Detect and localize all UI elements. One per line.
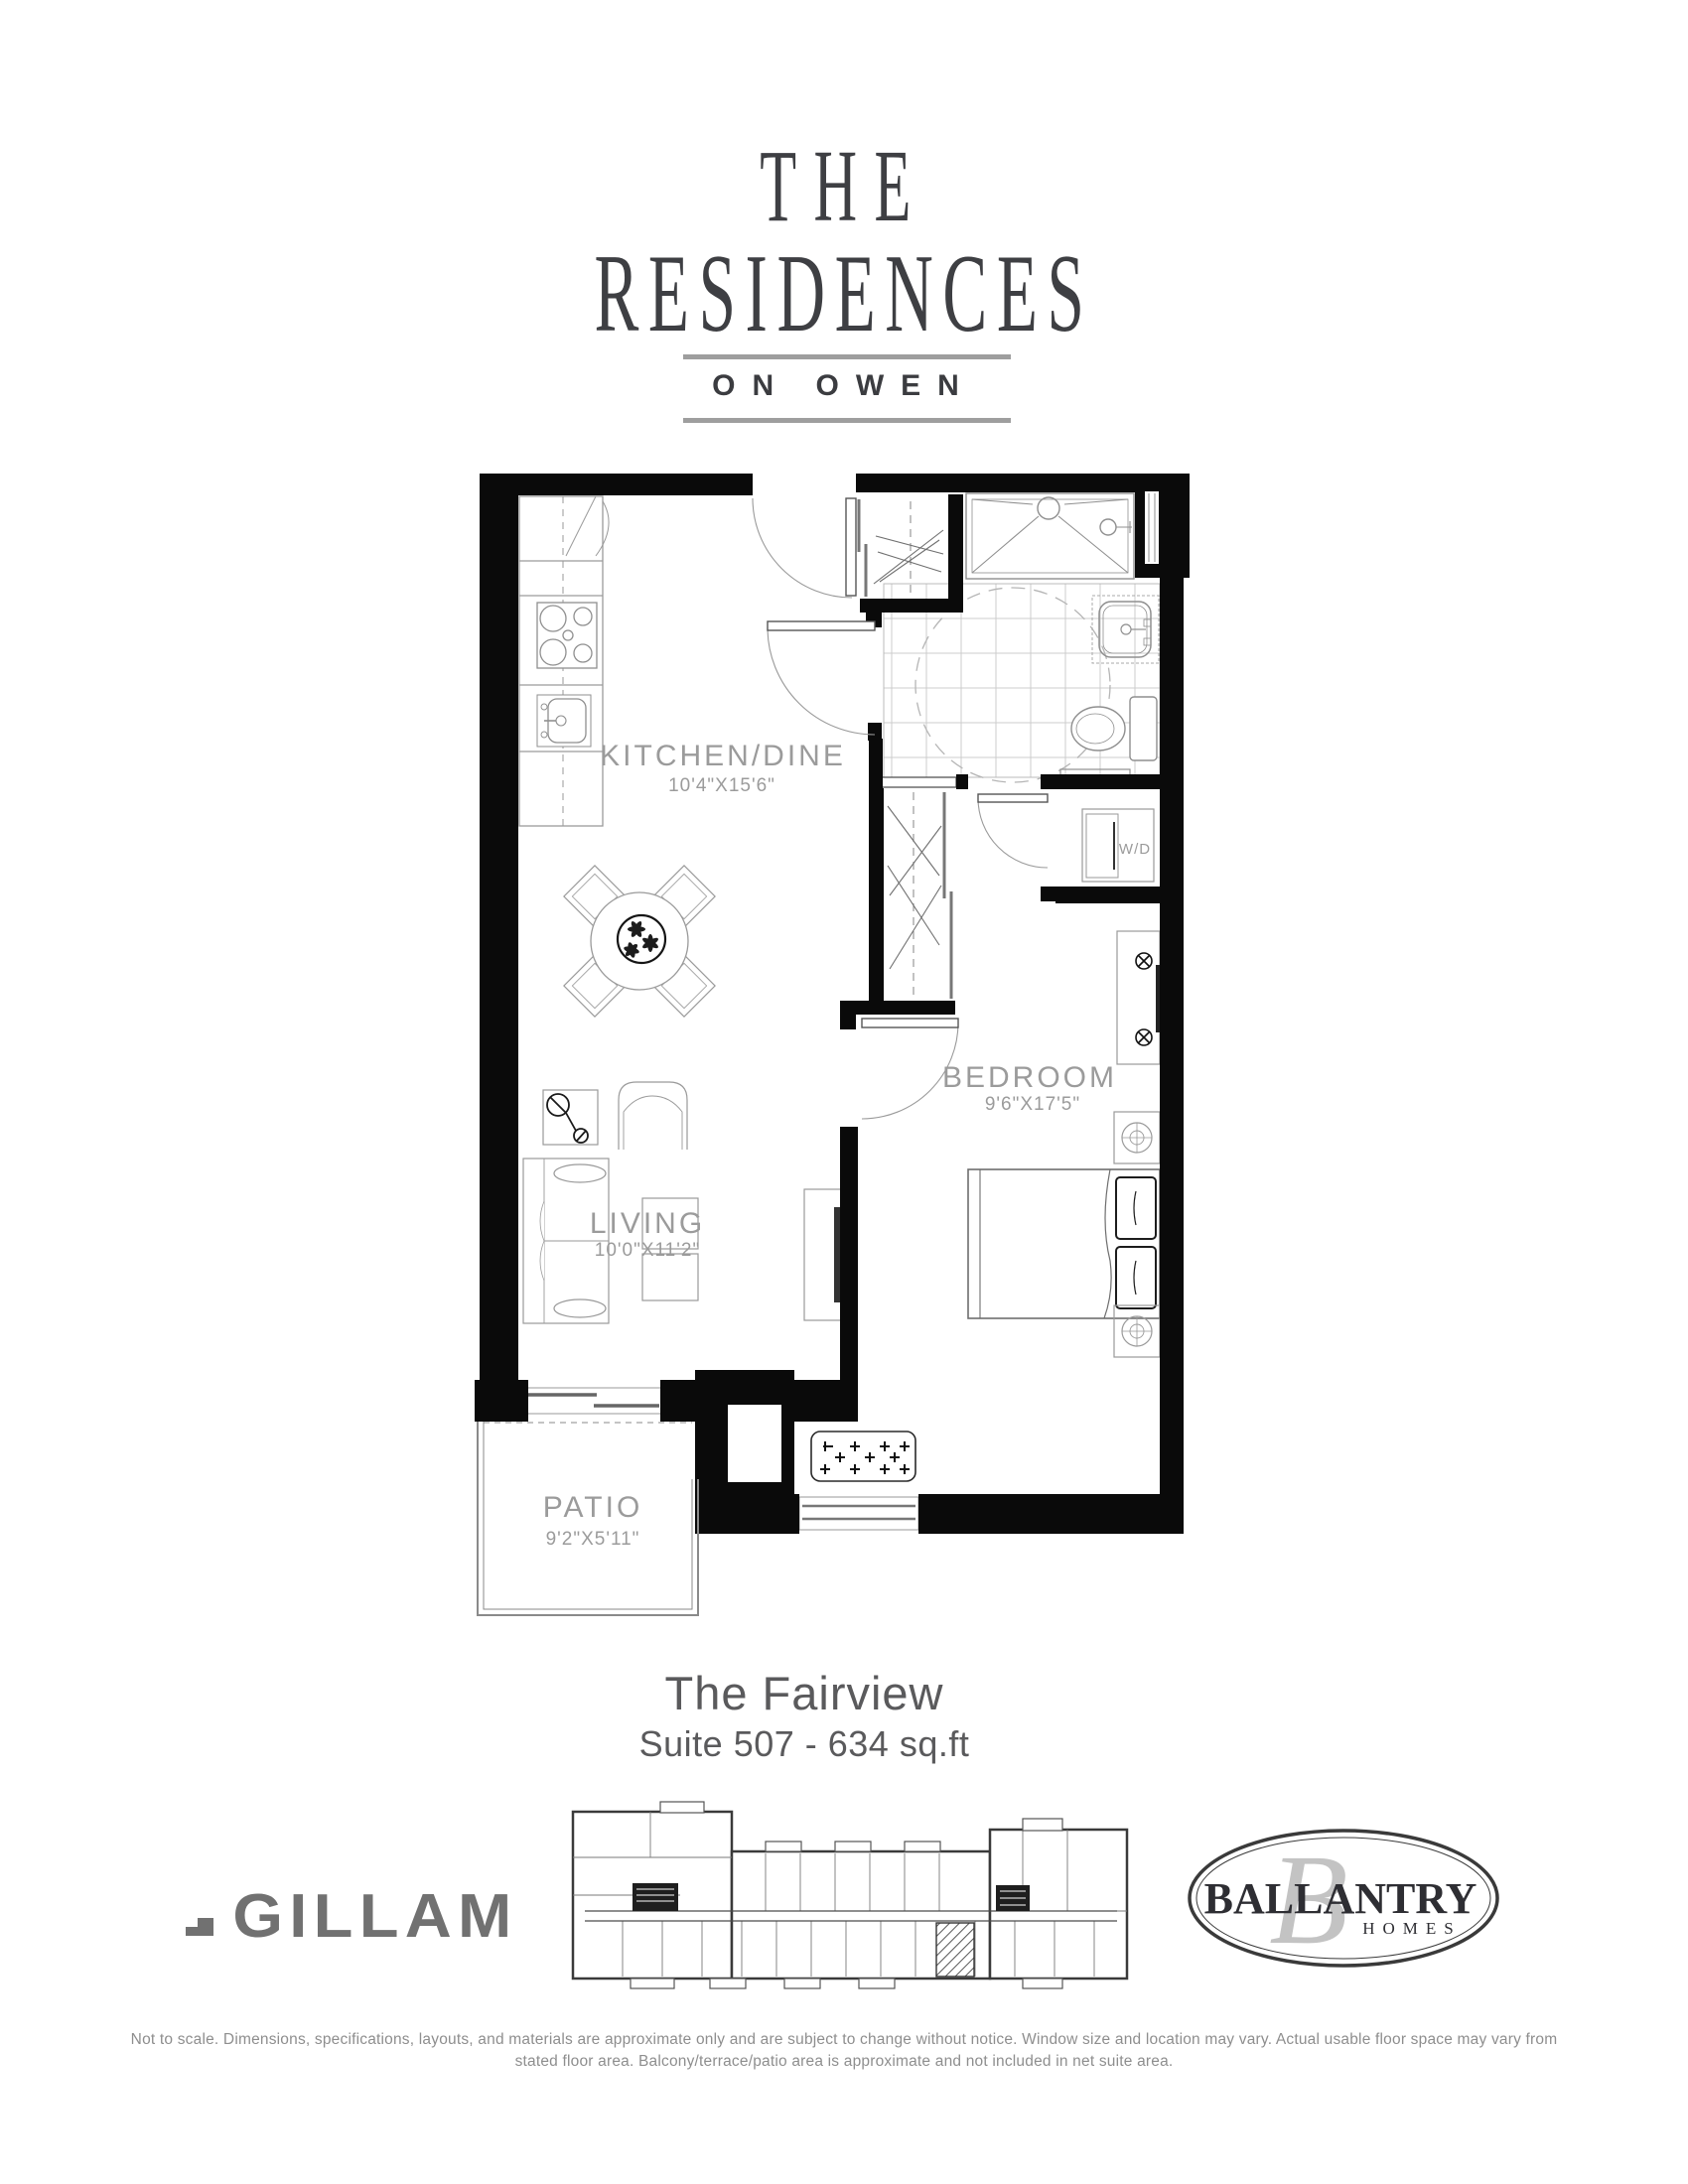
hall-closet bbox=[888, 792, 951, 999]
gillam-wordmark: GILLAM bbox=[232, 1881, 517, 1950]
dresser bbox=[1117, 931, 1160, 1064]
entry-door bbox=[753, 498, 856, 598]
ballantry-logo: B BALLANTRY HOMES bbox=[1182, 1822, 1509, 1976]
stove bbox=[537, 603, 597, 668]
wd-label: W/D bbox=[1119, 841, 1151, 858]
bathroom-tile-grid bbox=[884, 584, 1160, 777]
dining-set bbox=[564, 866, 715, 1017]
entry-closet bbox=[859, 499, 943, 597]
disclaimer-line-2: stated floor area. Balcony/terrace/patio… bbox=[0, 2053, 1688, 2071]
suite-name: The Fairview bbox=[308, 1666, 1301, 1720]
armchair bbox=[619, 1082, 687, 1150]
bathroom-turning-circle bbox=[915, 588, 1110, 782]
bedroom-window bbox=[799, 1497, 918, 1530]
gillam-mark-icon bbox=[186, 1918, 213, 1936]
brand-word-residences: RESIDENCES bbox=[338, 230, 1350, 358]
tv-console bbox=[804, 1189, 842, 1320]
bench bbox=[811, 1432, 915, 1481]
tagline-rule-top bbox=[683, 354, 1011, 359]
kitchen-dims: 10'4"X15'6" bbox=[668, 775, 775, 796]
living-label: LIVING bbox=[590, 1207, 705, 1240]
patio-label: PATIO bbox=[543, 1491, 643, 1524]
brand-word-the: THE bbox=[354, 127, 1334, 245]
gillam-logo: GILLAM bbox=[184, 1866, 561, 1956]
disclaimer-line-1: Not to scale. Dimensions, specifications… bbox=[0, 2031, 1688, 2049]
brand-tagline: ON OWEN bbox=[0, 369, 1688, 403]
living-dims: 10'0"X11'2" bbox=[595, 1240, 700, 1261]
bathroom-door bbox=[768, 621, 875, 735]
key-plan bbox=[571, 1800, 1132, 1993]
ballantry-wordmark: BALLANTRY bbox=[1204, 1874, 1477, 1923]
patio-dims: 9'2"X5'11" bbox=[546, 1529, 640, 1550]
laundry-door bbox=[978, 794, 1048, 868]
dining-table bbox=[591, 892, 688, 990]
kitchen-label: KITCHEN/DINE bbox=[600, 740, 846, 772]
floorplan-page: { "header": { "line1": "THE", "line2": "… bbox=[0, 0, 1688, 2184]
bedroom-label: BEDROOM bbox=[942, 1061, 1117, 1094]
ballantry-homes-label: HOMES bbox=[1362, 1919, 1462, 1938]
wall-mirror bbox=[1156, 965, 1160, 1032]
pier-notch bbox=[728, 1405, 781, 1482]
kitchen-sink bbox=[537, 695, 591, 747]
bathroom-sink bbox=[1092, 596, 1159, 663]
floorplan-drawing: KITCHEN/DINE 10'4"X15'6" LIVING 10'0"X11… bbox=[475, 467, 1192, 1658]
bath-window-slot bbox=[1145, 491, 1159, 564]
highlighted-suite bbox=[936, 1923, 974, 1977]
nightstand-top bbox=[1114, 1112, 1160, 1163]
floor-lamp bbox=[543, 1090, 598, 1145]
tagline-rule-bottom bbox=[683, 418, 1011, 423]
tv-screen bbox=[834, 1207, 840, 1302]
living-window bbox=[524, 1388, 663, 1414]
bedroom-dims: 9'6"X17'5" bbox=[985, 1094, 1080, 1115]
shower bbox=[966, 493, 1134, 579]
bed bbox=[968, 1169, 1160, 1318]
suite-number-area: Suite 507 - 634 sq.ft bbox=[308, 1723, 1301, 1765]
bathroom-partition-wall bbox=[882, 777, 956, 787]
